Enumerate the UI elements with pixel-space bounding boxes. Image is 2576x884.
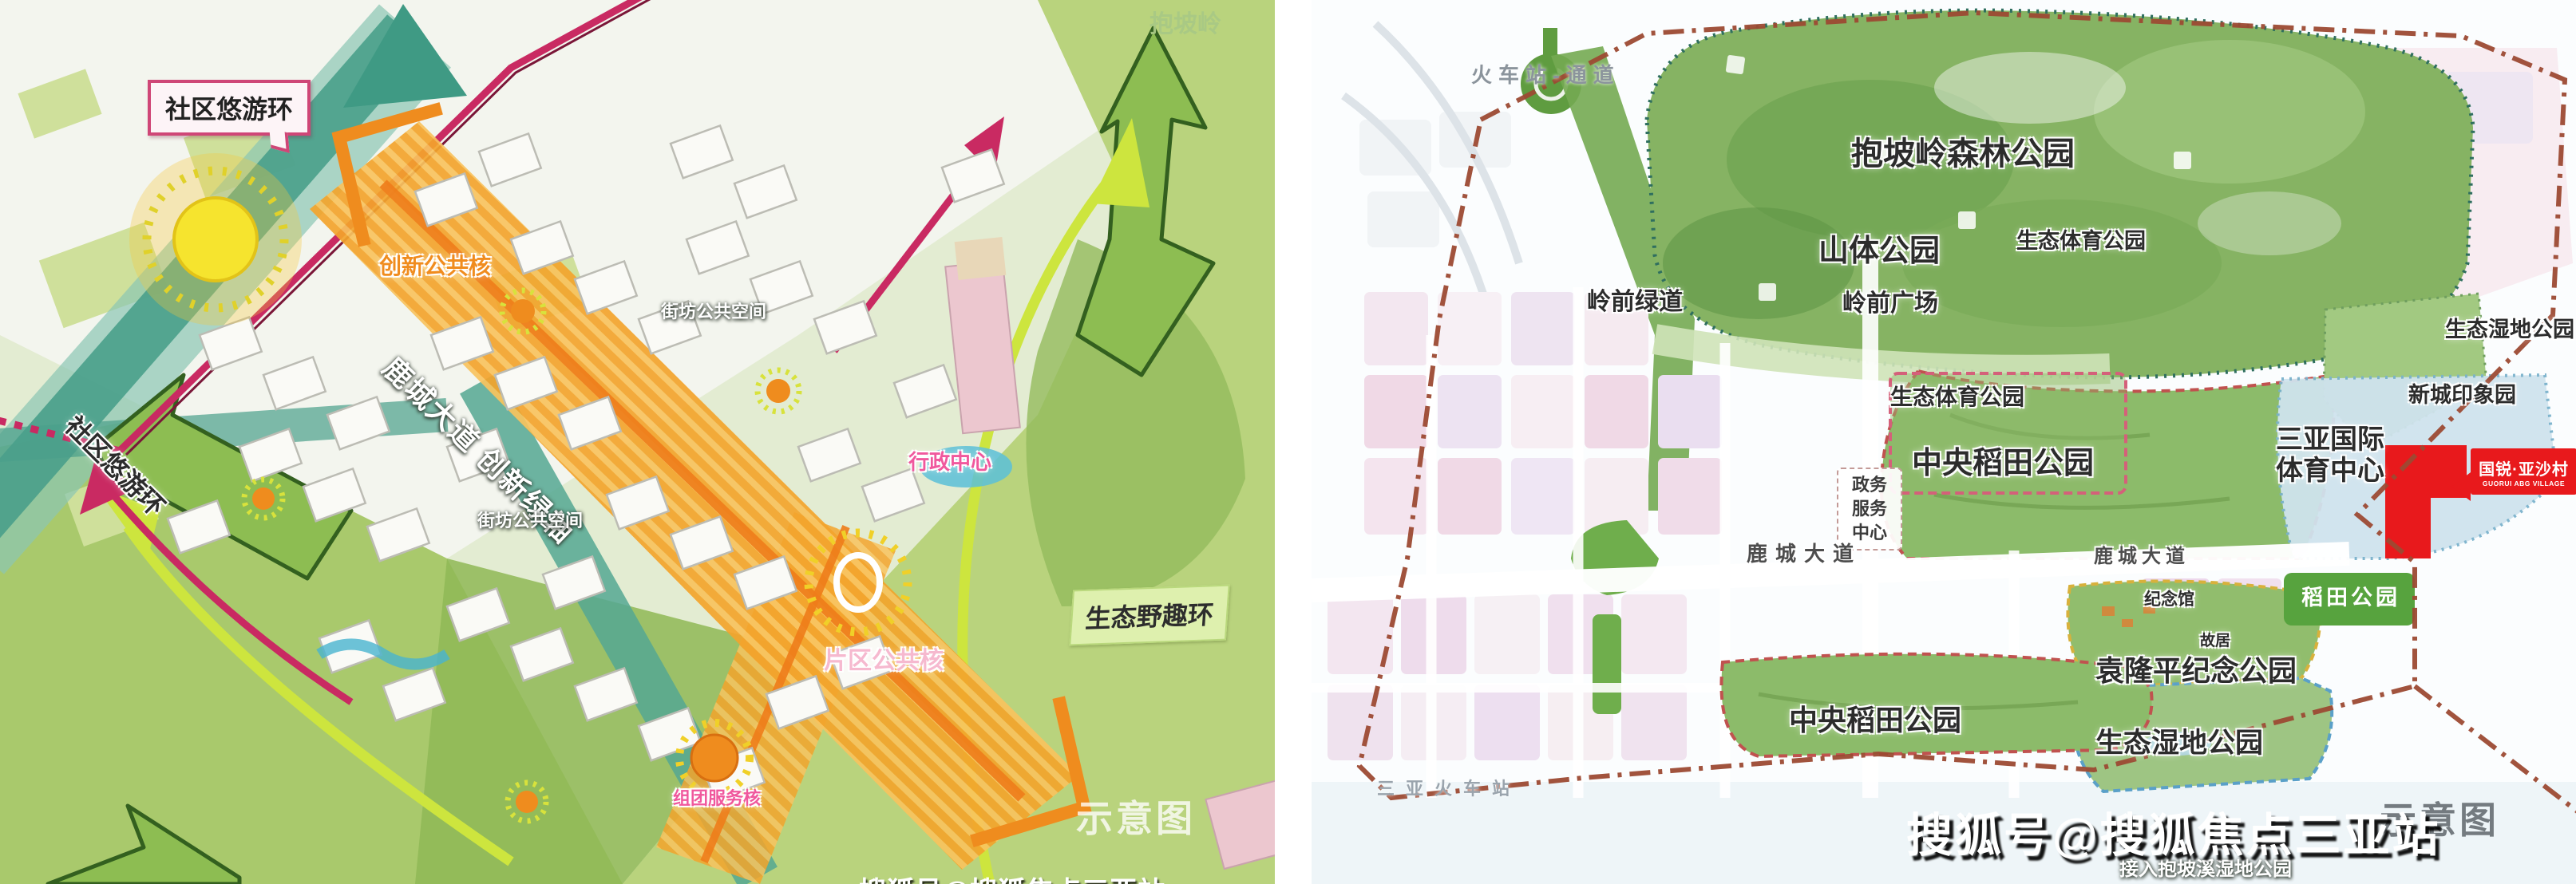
intl-sports-center-label: 三亚国际 体育中心 — [2276, 424, 2384, 487]
sanya-station-label: 三亚火车站 — [1377, 779, 1521, 799]
gov-center-line2: 服务 — [1852, 497, 1887, 521]
gov-service-center-box: 政务 服务 中心 — [1837, 468, 1902, 551]
gov-center-line1: 政务 — [1852, 473, 1887, 497]
lingqian-greenway-label: 岭前绿道 — [1587, 289, 1683, 317]
guorui-logo-en: GUORUI ABG VILLAGE — [2483, 479, 2565, 487]
central-rice-park-lower-label: 中央稻田公园 — [1789, 704, 1961, 736]
cluster-service-core-label: 组团服务核 — [673, 788, 761, 808]
lucheng-avenue-right-label: 鹿城大道 — [2094, 546, 2190, 568]
eco-sports-park-mid-label: 生态体育公园 — [1890, 385, 2024, 410]
eco-sports-park-top-label: 生态体育公园 — [2016, 229, 2146, 254]
wetland-park-lower-label: 生态湿地公园 — [2095, 728, 2263, 760]
yuan-longping-park-label: 袁隆平纪念公园 — [2095, 654, 2297, 687]
lingqian-plaza-label: 岭前广场 — [1842, 290, 1938, 318]
block-public-space-upper-label: 街坊公共空间 — [661, 302, 766, 322]
station-corridor-label: 火车站-通道 — [1471, 64, 1620, 88]
block-public-space-lower-label: 街坊公共空间 — [477, 511, 583, 531]
baopoling-hill-label: 抱坡岭 — [1150, 11, 1221, 39]
admin-center-label: 行政中心 — [908, 451, 991, 475]
rice-park-badge-label: 稻田公园 — [2301, 586, 2400, 610]
master-plan-art — [1312, 0, 2576, 884]
screenshot-stage: 社区悠游环 社区悠游环 创新公共核 街坊公共空间 鹿城大道 创新绿轴 街坊公共空… — [0, 0, 2576, 884]
new-town-garden-label: 新城印象园 — [2408, 383, 2516, 408]
intl-sports-center-line2: 体育中心 — [2276, 456, 2384, 487]
master-plan-panel: 火车站-通道 抱坡岭森林公园 山体公园 生态体育公园 岭前广场 岭前绿道 生态湿… — [1312, 0, 2576, 884]
lucheng-avenue-left-label: 鹿城大道 — [1747, 543, 1862, 566]
forest-park-label: 抱坡岭森林公园 — [1851, 136, 2075, 172]
guorui-yashacun-logo: 国锐·亚沙村 GUORUI ABG VILLAGE — [2471, 448, 2576, 495]
schematic-watermark-left: 示意图 — [1076, 790, 1196, 843]
concept-diagram-panel: 社区悠游环 社区悠游环 创新公共核 街坊公共空间 鹿城大道 创新绿轴 街坊公共空… — [0, 0, 1275, 884]
eco-wilderness-ring-label-box: 生态野趣环 — [1069, 585, 1230, 646]
district-core-label: 片区公共核 — [824, 648, 944, 676]
sohu-watermark-partial: 搜狐号@搜狐焦点三亚站 — [859, 870, 1165, 884]
intl-sports-center-line1: 三亚国际 — [2276, 424, 2384, 456]
guorui-logo-cn: 国锐·亚沙村 — [2479, 456, 2569, 479]
community-ring-label-box: 社区悠游环 — [148, 80, 311, 136]
mountain-park-label: 山体公园 — [1818, 235, 1940, 270]
memorial-hall-label: 纪念馆 — [2144, 590, 2194, 610]
innovation-core-label: 创新公共核 — [379, 254, 491, 279]
former-residence-label: 故居 — [2200, 633, 2230, 650]
sohu-watermark: 搜狐号@搜狐焦点三亚站 — [1906, 798, 2441, 865]
wetland-park-right-label: 生态湿地公园 — [2445, 318, 2574, 342]
central-rice-park-upper-label: 中央稻田公园 — [1912, 447, 2094, 482]
